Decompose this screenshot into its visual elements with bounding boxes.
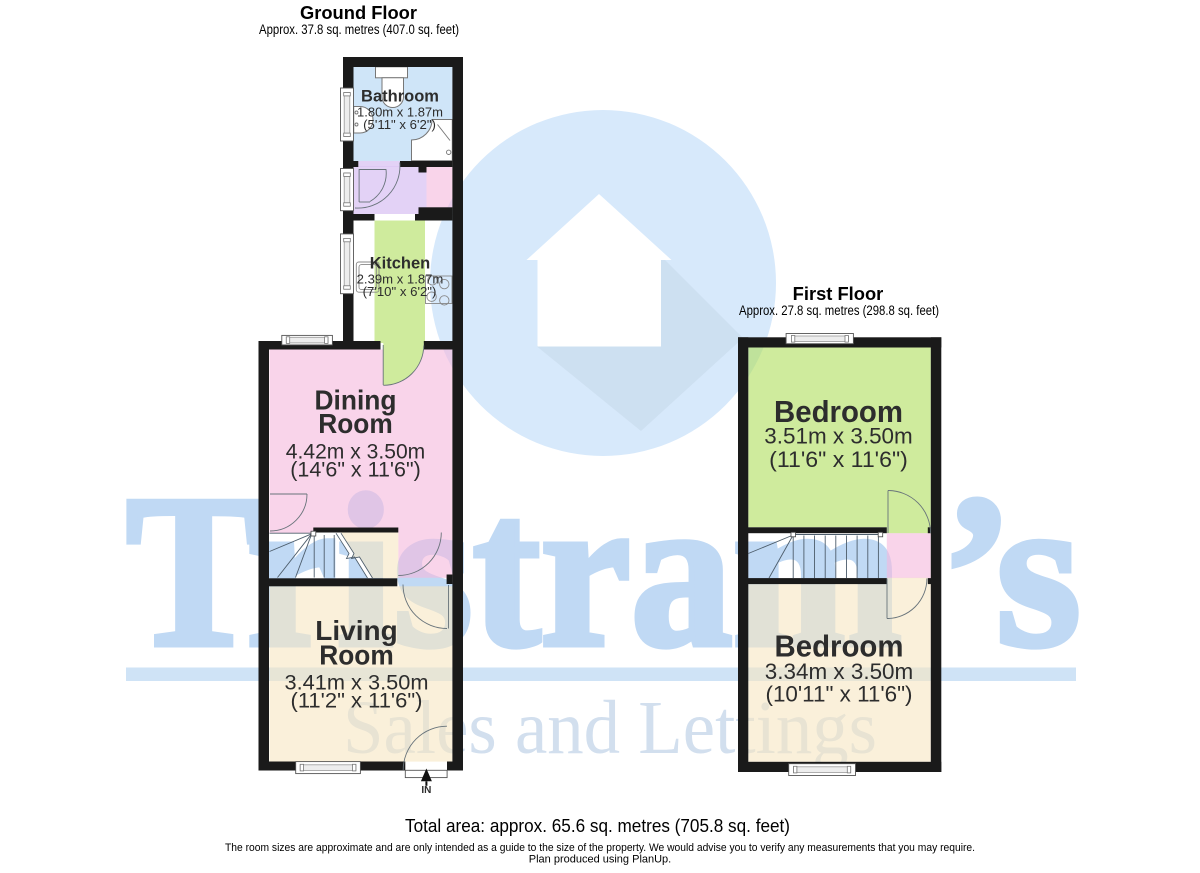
svg-text:Bathroom: Bathroom bbox=[361, 87, 439, 105]
svg-text:(11'2" x 11'6"): (11'2" x 11'6") bbox=[291, 689, 423, 713]
svg-text:Ground Floor: Ground Floor bbox=[300, 3, 417, 23]
svg-text:(7'10" x 6'2"): (7'10" x 6'2") bbox=[363, 284, 437, 299]
svg-text:Approx. 27.8 sq. metres (298.8: Approx. 27.8 sq. metres (298.8 sq. feet) bbox=[739, 303, 939, 318]
svg-text:(14'6" x 11'6"): (14'6" x 11'6") bbox=[290, 458, 421, 482]
svg-text:(11'6" x 11'6"): (11'6" x 11'6") bbox=[769, 447, 908, 472]
svg-text:Total area: approx. 65.6 sq. m: Total area: approx. 65.6 sq. metres (705… bbox=[405, 816, 790, 836]
svg-text:3.34m x 3.50m: 3.34m x 3.50m bbox=[765, 659, 914, 684]
svg-text:Room: Room bbox=[319, 640, 394, 671]
svg-text:(5'11" x 6'2"): (5'11" x 6'2") bbox=[363, 117, 436, 132]
svg-text:(10'11" x 11'6"): (10'11" x 11'6") bbox=[766, 682, 913, 707]
svg-text:3.51m x 3.50m: 3.51m x 3.50m bbox=[764, 424, 913, 449]
svg-text:IN: IN bbox=[421, 785, 431, 796]
svg-text:Plan produced using PlanUp.: Plan produced using PlanUp. bbox=[529, 854, 671, 866]
svg-text:First Floor: First Floor bbox=[793, 284, 884, 304]
svg-text:Kitchen: Kitchen bbox=[370, 255, 431, 273]
svg-text:The room sizes are approximate: The room sizes are approximate and are o… bbox=[225, 842, 975, 854]
svg-text:Approx. 37.8 sq. metres (407.0: Approx. 37.8 sq. metres (407.0 sq. feet) bbox=[259, 22, 459, 37]
svg-text:Room: Room bbox=[318, 408, 393, 439]
